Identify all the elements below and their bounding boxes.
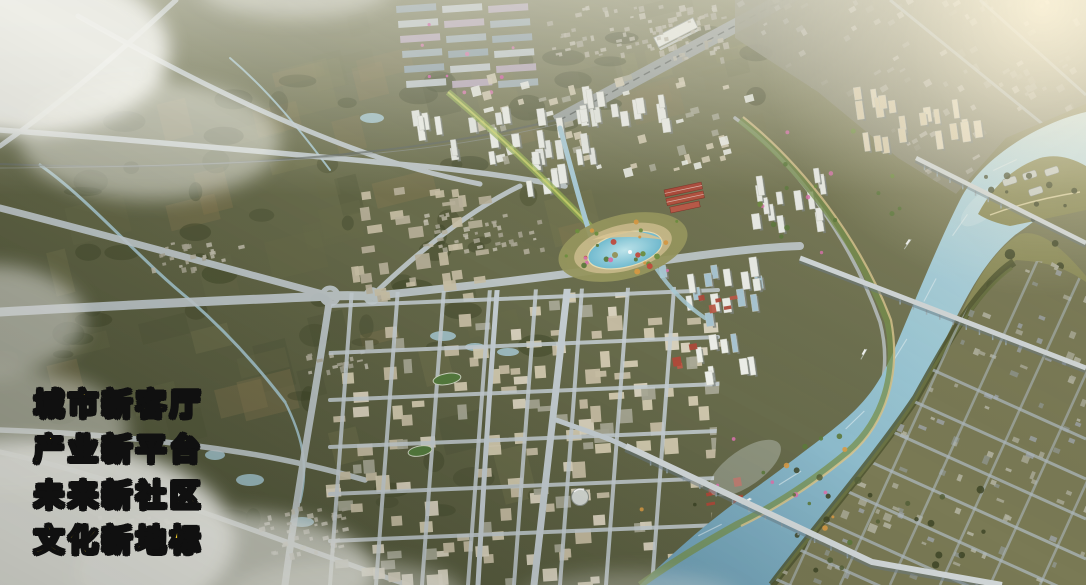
aerial-city-rendering: 城市新客厅 产业新平台 未来新社区 文化新地标 <box>0 0 1086 585</box>
slogan-text-3: 未来新社区 <box>34 482 204 512</box>
slogan-line: 产业新平台 <box>34 429 204 475</box>
slogan-text-1: 城市新客厅 <box>34 391 204 421</box>
slogan-text-block: 城市新客厅 产业新平台 未来新社区 文化新地标 <box>34 383 204 565</box>
slogan-line: 城市新客厅 <box>34 383 204 429</box>
slogan-line: 文化新地标 <box>34 520 204 566</box>
slogan-line: 未来新社区 <box>34 474 204 520</box>
slogan-text-2: 产业新平台 <box>34 436 204 466</box>
slogan-text-4: 文化新地标 <box>34 527 204 557</box>
